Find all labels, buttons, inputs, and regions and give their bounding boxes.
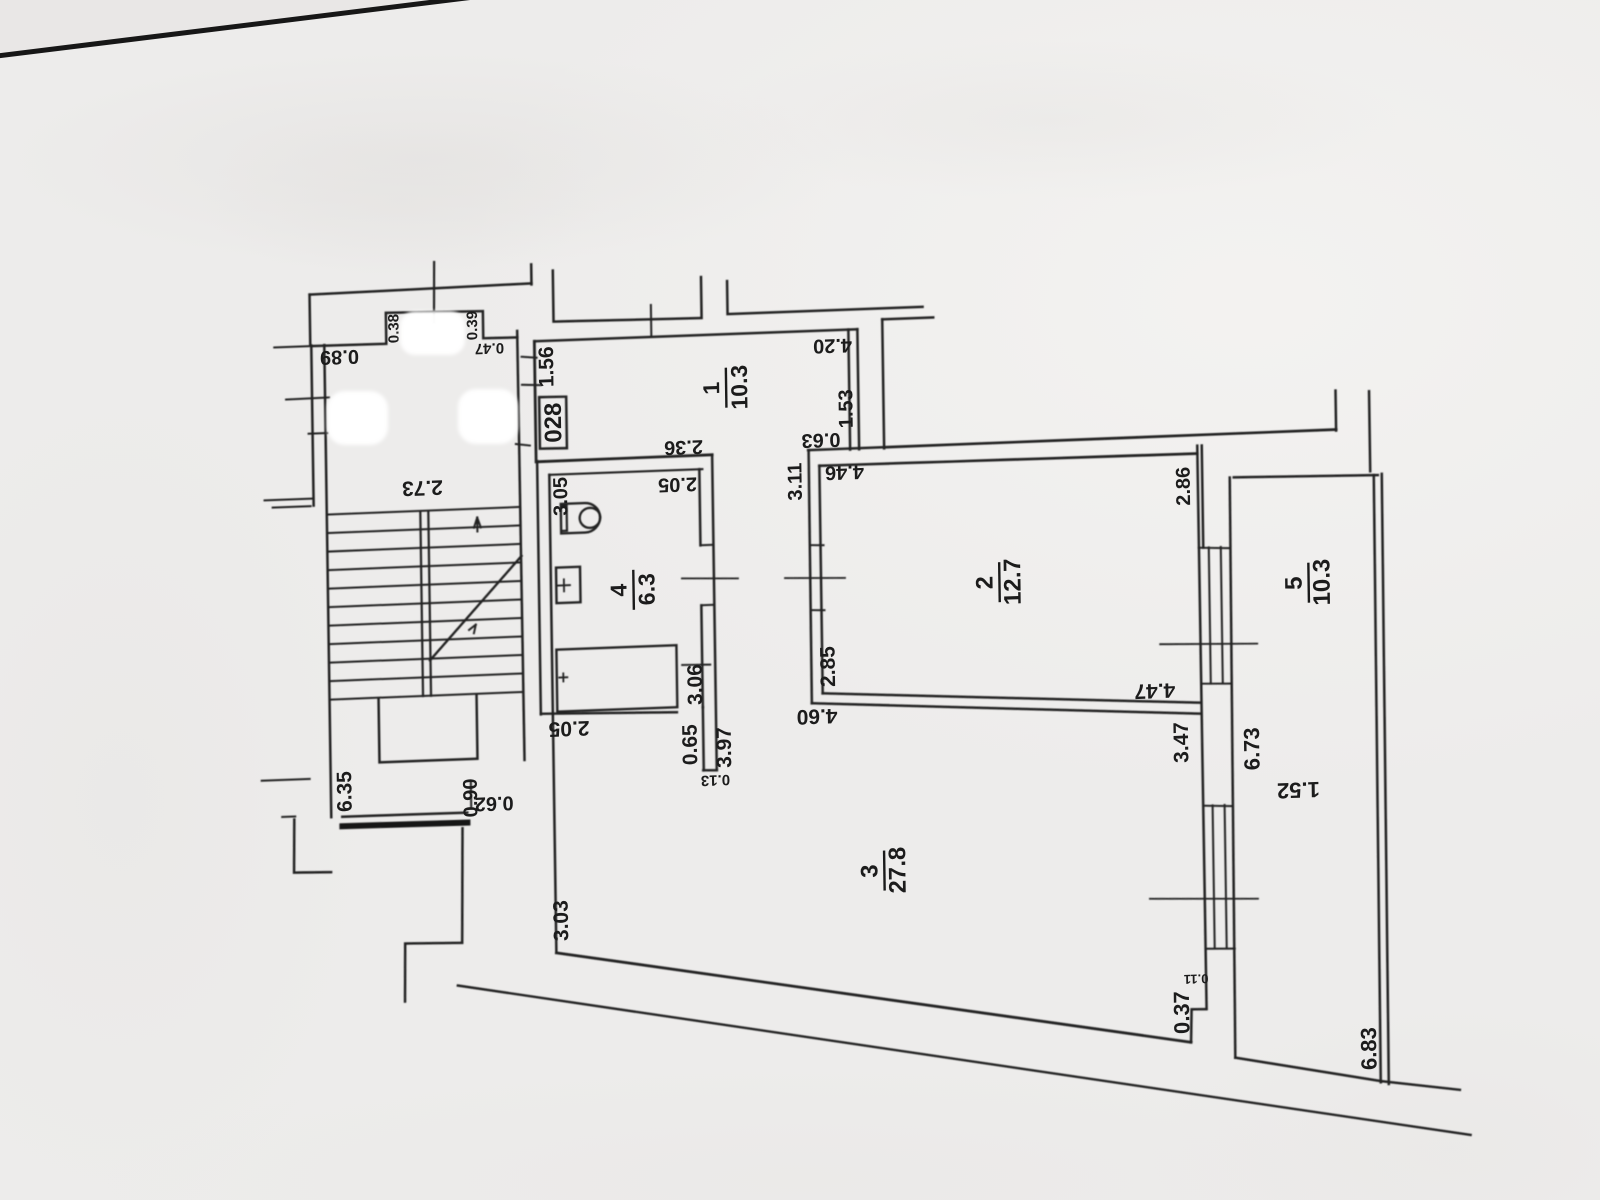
svg-text:0.11: 0.11 xyxy=(1184,971,1209,987)
svg-text:0.63: 0.63 xyxy=(801,428,840,451)
svg-text:3.97: 3.97 xyxy=(713,727,737,769)
svg-text:2.05: 2.05 xyxy=(548,716,590,741)
svg-text:4.47: 4.47 xyxy=(1134,678,1175,703)
svg-text:2: 2 xyxy=(971,576,998,590)
svg-text:0.39: 0.39 xyxy=(464,311,481,341)
svg-text:0.90: 0.90 xyxy=(460,778,483,818)
svg-text:2.86: 2.86 xyxy=(1173,466,1196,506)
svg-text:0.89: 0.89 xyxy=(320,345,359,368)
svg-text:4.60: 4.60 xyxy=(796,704,837,729)
svg-text:0.37: 0.37 xyxy=(1169,991,1195,1035)
svg-text:4.20: 4.20 xyxy=(813,334,852,357)
svg-text:6.3: 6.3 xyxy=(633,573,659,606)
svg-text:1.56: 1.56 xyxy=(535,346,559,388)
svg-text:2.85: 2.85 xyxy=(817,645,841,687)
svg-text:3.06: 3.06 xyxy=(684,664,708,706)
svg-text:5: 5 xyxy=(1281,576,1308,590)
svg-text:3.03: 3.03 xyxy=(550,900,574,942)
svg-text:028: 028 xyxy=(540,402,568,443)
svg-text:10.3: 10.3 xyxy=(1308,558,1336,606)
svg-text:3.05: 3.05 xyxy=(550,477,573,517)
svg-text:27.8: 27.8 xyxy=(884,846,912,894)
svg-text:3.11: 3.11 xyxy=(784,462,807,501)
svg-text:1.52: 1.52 xyxy=(1277,777,1320,804)
svg-text:2.73: 2.73 xyxy=(402,475,443,500)
svg-text:0.13: 0.13 xyxy=(701,771,730,789)
svg-text:1: 1 xyxy=(698,381,724,395)
svg-text:4: 4 xyxy=(605,583,631,597)
svg-text:6.83: 6.83 xyxy=(1356,1027,1382,1071)
svg-text:3.47: 3.47 xyxy=(1170,722,1194,764)
svg-text:0.65: 0.65 xyxy=(679,724,703,766)
svg-text:1.53: 1.53 xyxy=(835,389,858,429)
svg-text:10.3: 10.3 xyxy=(726,364,753,410)
svg-text:2.05: 2.05 xyxy=(658,472,697,495)
svg-text:12.7: 12.7 xyxy=(999,558,1027,606)
svg-text:0.47: 0.47 xyxy=(475,339,504,357)
svg-text:6.35: 6.35 xyxy=(333,770,357,812)
svg-text:2.36: 2.36 xyxy=(664,435,703,458)
svg-text:6.73: 6.73 xyxy=(1239,727,1265,771)
svg-text:3: 3 xyxy=(856,864,883,878)
svg-text:4.46: 4.46 xyxy=(825,460,864,483)
